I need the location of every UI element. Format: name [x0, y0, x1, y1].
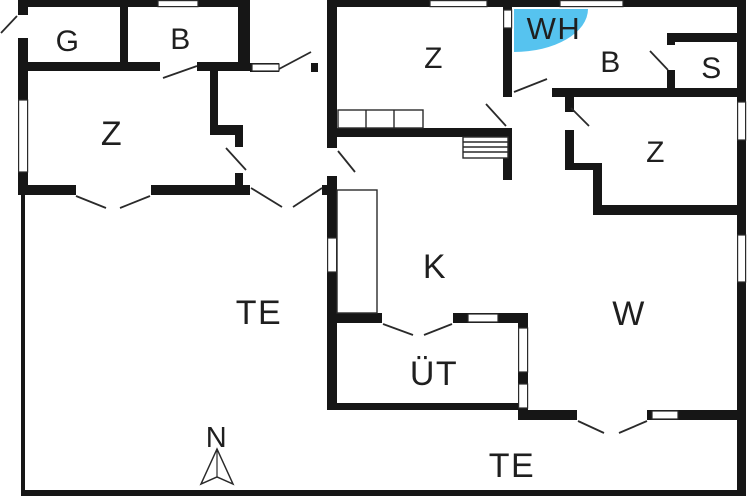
door-gap — [512, 88, 552, 97]
door-gap — [577, 410, 647, 420]
window — [252, 64, 279, 71]
room-label-g: G — [56, 25, 81, 58]
wall-segment — [667, 33, 746, 42]
room-label-z-right: Z — [646, 136, 666, 169]
window — [430, 1, 487, 7]
door-gap — [327, 148, 337, 176]
wall-segment — [565, 97, 574, 170]
room-label-s: S — [701, 52, 723, 85]
closet — [337, 190, 377, 313]
window — [328, 238, 337, 272]
compass: N — [201, 422, 233, 484]
window — [738, 235, 746, 282]
door-gap — [76, 185, 151, 195]
wall-segment — [327, 0, 746, 7]
window — [504, 10, 512, 28]
wall-segment — [238, 0, 250, 71]
door-gap — [17, 15, 29, 38]
floor-plan: N G B Z Z WH B S Z K TE ÜT W TE — [0, 0, 750, 500]
terrace-wall — [21, 490, 746, 496]
door-gap — [565, 112, 574, 130]
door-gap — [382, 313, 453, 323]
wall-segment — [327, 128, 512, 137]
door-gap — [279, 63, 311, 72]
window — [560, 1, 623, 7]
door-gap — [667, 45, 675, 70]
window — [519, 328, 528, 372]
terrace-bottom-label: TE — [489, 447, 535, 485]
window — [19, 100, 28, 172]
room-label-z-left: Z — [101, 115, 123, 153]
door-gap — [160, 62, 197, 71]
wall-segment — [597, 205, 746, 215]
room-label-w: W — [612, 295, 646, 333]
terrace-left-label: TE — [236, 294, 282, 332]
window — [519, 384, 528, 408]
compass-north-label: N — [206, 422, 228, 454]
wall-segment — [18, 0, 250, 7]
covered-terrace-label: ÜT — [410, 355, 458, 393]
room-label-z-middle: Z — [424, 42, 444, 75]
window — [468, 314, 498, 322]
whirlpool-label: WH — [527, 11, 582, 46]
window — [738, 102, 746, 140]
terrace-wall — [21, 195, 25, 496]
counter-units — [338, 110, 423, 128]
wall-segment — [120, 7, 128, 64]
room-label-k: K — [423, 248, 447, 286]
wall-segment — [327, 403, 518, 410]
window — [158, 1, 198, 7]
floor-plan-drawing: N G B Z Z WH B S Z K TE ÜT W TE — [0, 0, 750, 500]
wall-segment — [210, 62, 218, 135]
room-label-b-left: B — [170, 23, 192, 56]
window — [652, 411, 678, 419]
wall-segment — [210, 125, 243, 135]
room-label-b-bath: B — [600, 46, 622, 79]
wall-segment — [327, 0, 337, 403]
